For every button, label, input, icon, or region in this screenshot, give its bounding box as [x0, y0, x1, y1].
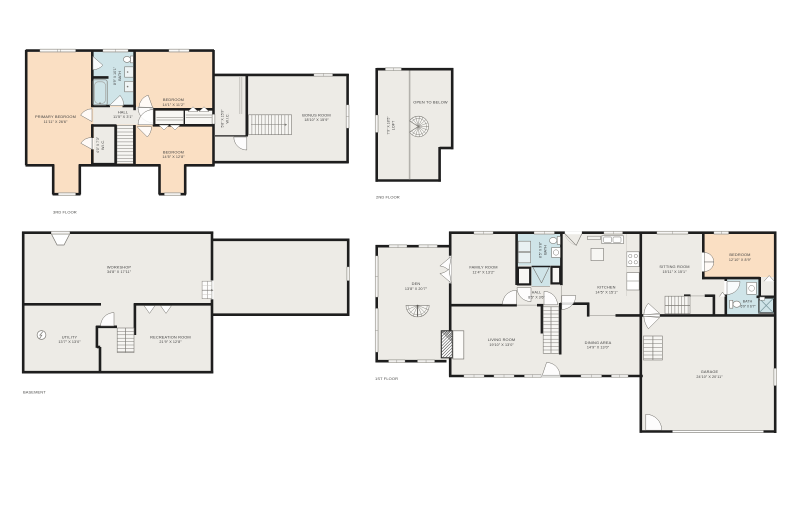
svg-text:BATH: BATH: [544, 245, 548, 255]
svg-text:14’5” X 15’1”: 14’5” X 15’1”: [595, 291, 618, 295]
svg-text:24’10” X 20’11”: 24’10” X 20’11”: [696, 375, 723, 379]
svg-text:5’8” X 15’9”: 5’8” X 15’9”: [221, 109, 225, 128]
svg-text:14’9” X 13’0”: 14’9” X 13’0”: [587, 346, 610, 350]
svg-text:W.I.C.: W.I.C.: [226, 113, 230, 123]
svg-text:BATH: BATH: [743, 300, 753, 304]
svg-text:6’9” X 6’7”: 6’9” X 6’7”: [740, 304, 755, 308]
svg-text:14’5” X 12’8”: 14’5” X 12’8”: [162, 155, 185, 159]
svg-text:SITTING ROOM: SITTING ROOM: [659, 264, 689, 269]
svg-text:13’8” X 20’7”: 13’8” X 20’7”: [405, 287, 428, 291]
svg-text:WORKSHOP: WORKSHOP: [107, 264, 132, 269]
svg-text:GARAGE: GARAGE: [701, 369, 719, 374]
svg-text:BEDROOM: BEDROOM: [163, 149, 184, 154]
svg-text:KITCHEN: KITCHEN: [597, 285, 615, 290]
svg-text:BATH: BATH: [118, 71, 122, 81]
svg-text:8’9” X 10’1”: 8’9” X 10’1”: [113, 66, 117, 85]
svg-text:14’1” X 11’2”: 14’1” X 11’2”: [163, 103, 186, 107]
svg-text:HALL: HALL: [532, 291, 542, 295]
svg-text:PRIMARY BEDROOM: PRIMARY BEDROOM: [35, 114, 76, 119]
svg-text:8’5” X 9’8”: 8’5” X 9’8”: [539, 241, 543, 258]
svg-text:21’9” X 12’8”: 21’9” X 12’8”: [159, 340, 182, 344]
svg-text:15’11” X 15’1”: 15’11” X 15’1”: [662, 270, 687, 274]
svg-text:11’5” X 3’1”: 11’5” X 3’1”: [113, 115, 133, 119]
svg-text:BEDROOM: BEDROOM: [729, 252, 750, 257]
svg-text:DEN: DEN: [412, 281, 421, 286]
svg-text:W.I.C.: W.I.C.: [101, 140, 105, 150]
svg-text:4’0” X 7’3”: 4’0” X 7’3”: [96, 136, 100, 153]
svg-text:UTILITY: UTILITY: [62, 334, 78, 339]
svg-text:RECREATION ROOM: RECREATION ROOM: [150, 334, 191, 339]
svg-text:7’9” X 18’5”: 7’9” X 18’5”: [386, 116, 390, 135]
svg-text:FAMILY ROOM: FAMILY ROOM: [469, 265, 497, 270]
svg-text:13’7” X 13’0”: 13’7” X 13’0”: [58, 340, 81, 344]
svg-text:1ST FLOOR: 1ST FLOOR: [375, 376, 398, 381]
svg-text:18’10” X 15’9”: 18’10” X 15’9”: [304, 118, 329, 122]
svg-text:HALL: HALL: [118, 109, 129, 114]
svg-text:BASEMENT: BASEMENT: [23, 390, 46, 395]
svg-text:11’4” X 13’2”: 11’4” X 13’2”: [473, 270, 496, 274]
svg-text:DINING AREA: DINING AREA: [585, 340, 612, 345]
svg-text:3RD FLOOR: 3RD FLOOR: [53, 210, 77, 215]
svg-text:BEDROOM: BEDROOM: [163, 97, 184, 102]
svg-text:11’11” X 26’6”: 11’11” X 26’6”: [44, 120, 68, 124]
svg-text:LIVING ROOM: LIVING ROOM: [488, 337, 516, 342]
svg-text:34’8” X 17’11”: 34’8” X 17’11”: [107, 270, 132, 274]
svg-text:BONUS ROOM: BONUS ROOM: [302, 112, 331, 117]
svg-text:LOFT: LOFT: [391, 120, 395, 130]
svg-text:12’10” X 8’9”: 12’10” X 8’9”: [729, 258, 752, 262]
svg-text:19’10” X 13’0”: 19’10” X 13’0”: [489, 343, 514, 347]
svg-text:OPEN TO BELOW: OPEN TO BELOW: [413, 100, 448, 105]
svg-text:8’5” X 3’6”: 8’5” X 3’6”: [528, 295, 545, 299]
svg-text:2ND FLOOR: 2ND FLOOR: [376, 195, 400, 200]
